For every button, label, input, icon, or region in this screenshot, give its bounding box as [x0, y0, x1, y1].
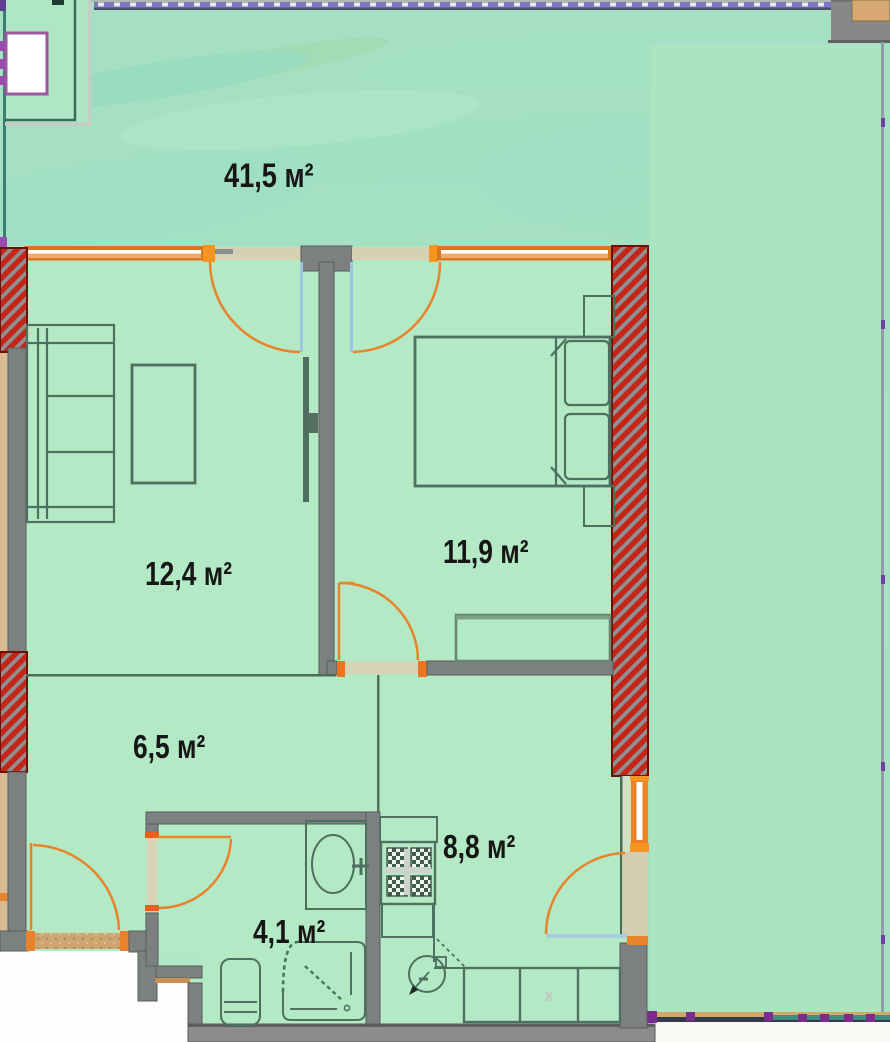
svg-text:12,4 м²: 12,4 м²: [145, 556, 232, 592]
svg-text:8,8 м²: 8,8 м²: [443, 829, 515, 865]
svg-text:x: x: [544, 986, 554, 1005]
svg-text:4,1 м²: 4,1 м²: [253, 914, 325, 950]
svg-text:41,5 м²: 41,5 м²: [224, 156, 314, 195]
svg-text:11,9 м²: 11,9 м²: [443, 534, 529, 570]
svg-text:6,5 м²: 6,5 м²: [133, 729, 205, 765]
